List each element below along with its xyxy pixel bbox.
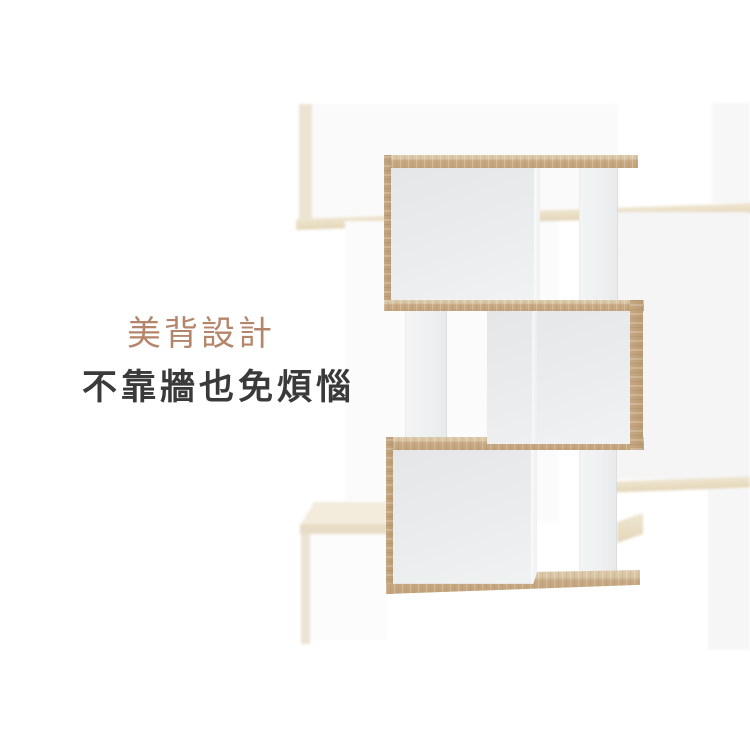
bottom-cube-panel-edge — [531, 450, 537, 588]
top-cube-panel-edge — [534, 166, 540, 301]
middle-cube-back-panel — [487, 310, 630, 444]
product-banner: 美背設計 不靠牆也免煩惱 — [0, 0, 750, 750]
bottom-cube-back-panel — [392, 450, 532, 588]
shelf-plank-upper-middle — [384, 300, 644, 311]
bottom-cube-support-column — [579, 450, 617, 571]
shelf-side-edge-bottom-left — [386, 437, 393, 594]
shelf-plank-top — [384, 155, 638, 168]
shelf-side-edge-top-left — [384, 155, 391, 311]
zigzag-display-shelf — [0, 0, 750, 750]
top-cube-back-panel — [391, 166, 535, 301]
shelf-side-edge-middle-right — [630, 300, 643, 450]
middle-cube-support-column — [405, 311, 447, 437]
top-cube-support-column — [579, 167, 618, 301]
middle-cube-panel-edge — [532, 310, 537, 444]
